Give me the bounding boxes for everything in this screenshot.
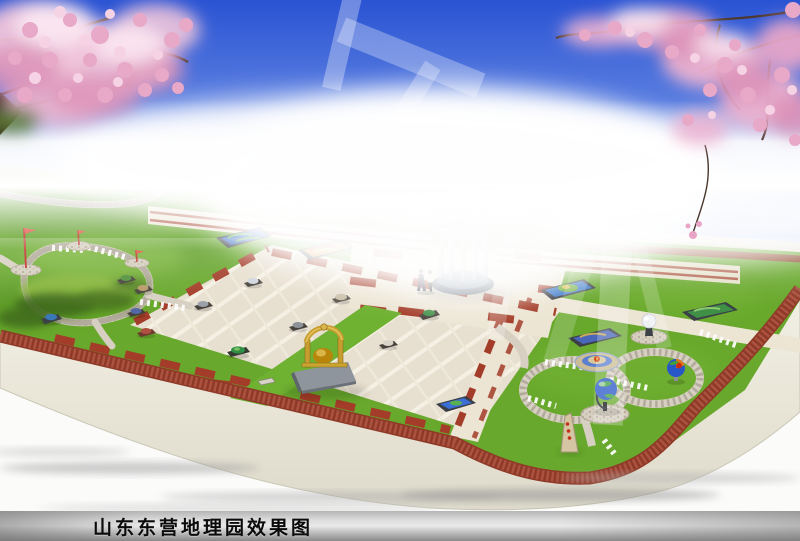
earth-cutaway-model — [667, 359, 685, 385]
park-rendering: 山东东营地理园效果图 — [0, 0, 800, 541]
caption-title: 山东东营地理园效果图 — [0, 513, 313, 540]
caption-bar: 山东东营地理园效果图 — [0, 511, 800, 541]
scene-canvas — [0, 0, 800, 541]
